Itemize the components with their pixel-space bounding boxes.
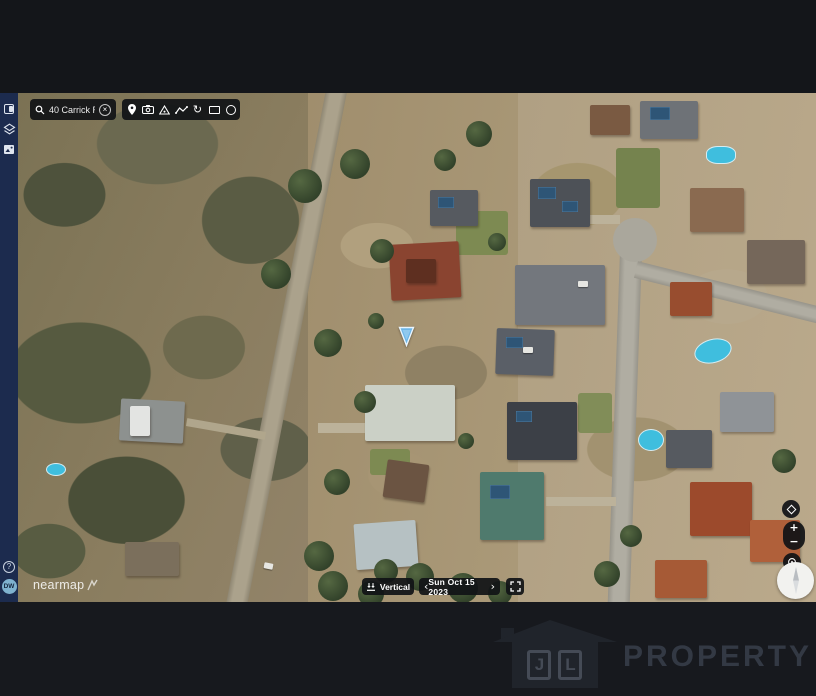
imagery-feature: [130, 406, 150, 436]
imagery-feature: [655, 560, 707, 598]
map-toolbar: ↻: [122, 99, 240, 120]
imagery-feature: [747, 240, 805, 284]
imagery-feature: [365, 385, 455, 441]
imagery-feature: [370, 239, 394, 263]
bottom-letterbox-bar: J L PROPERTY: [0, 602, 816, 696]
vertical-view-icon: [366, 582, 376, 592]
circle-measure-tool[interactable]: [224, 102, 238, 118]
imagery-feature: [666, 430, 712, 468]
nearmap-wordmark: nearmap: [33, 578, 84, 592]
imagery-feature: [690, 482, 752, 536]
rectangle-icon: [209, 106, 220, 114]
imagery-feature: [490, 485, 510, 499]
imagery-feature: [406, 259, 436, 283]
imagery-feature: [438, 197, 454, 208]
orbit-icon: [786, 504, 796, 514]
imagery-feature: [125, 542, 179, 576]
imagery-feature: [616, 148, 660, 208]
imagery-feature: [46, 463, 66, 476]
layers-icon: [3, 123, 16, 136]
line-measure-tool[interactable]: [174, 102, 188, 118]
compass-needle-icon: [791, 567, 801, 594]
survey-point-tool[interactable]: [158, 102, 172, 118]
nearmap-viewer-window: ? DW: [0, 0, 816, 696]
search-icon: [35, 105, 45, 115]
clear-search-button[interactable]: ×: [99, 104, 111, 116]
camera-icon: [142, 105, 154, 114]
help-glyph: ?: [7, 562, 11, 571]
imagery-feature: [458, 433, 474, 449]
imagery-feature: [720, 392, 774, 432]
rectangle-measure-tool[interactable]: [207, 102, 221, 118]
avatar-initials: DW: [4, 583, 15, 590]
sidebar-item-layers[interactable]: [0, 119, 18, 139]
fullscreen-icon: [510, 581, 521, 592]
orbit-control-button[interactable]: [782, 500, 800, 518]
imagery-feature: [261, 259, 291, 289]
imagery-feature: [613, 218, 657, 262]
pin-icon: [128, 104, 136, 115]
search-input[interactable]: 40 Carrick Rd, ...: [49, 105, 95, 115]
imagery-feature: [515, 265, 605, 325]
imagery-feature: [304, 541, 334, 571]
next-date-button[interactable]: ›: [491, 581, 495, 592]
survey-triangle-icon: [159, 105, 170, 115]
property-marker[interactable]: [398, 326, 415, 347]
imagery-feature: [772, 449, 796, 473]
imagery-feature: [620, 525, 642, 547]
user-avatar[interactable]: DW: [2, 579, 17, 594]
imagery-feature: [288, 169, 322, 203]
view-mode-label: Vertical: [380, 582, 410, 592]
imagery-feature: [383, 459, 430, 502]
jl-property-logo: J L PROPERTY: [493, 620, 812, 688]
survey-date-label: Sun Oct 15 2023: [428, 577, 490, 597]
aerial-imagery-canvas[interactable]: 40 Carrick Rd, ... ×: [18, 93, 816, 602]
imagery-feature: [578, 393, 612, 433]
imagery-feature: [119, 398, 185, 443]
logo-wordmark: PROPERTY: [623, 640, 812, 674]
polyline-icon: [175, 106, 188, 114]
image-icon: [3, 144, 15, 155]
fullscreen-button[interactable]: [506, 578, 524, 595]
imagery-feature: [488, 233, 506, 251]
imagery-feature: [466, 121, 492, 147]
imagery-feature: [318, 423, 366, 433]
imagery-feature: [546, 497, 616, 506]
panel-icon: [4, 104, 14, 114]
imagery-feature: [516, 411, 532, 422]
imagery-feature: [590, 105, 630, 135]
sidebar-item-exports[interactable]: [0, 139, 18, 159]
camera-tool[interactable]: [141, 102, 155, 118]
nearmap-logo: nearmap: [33, 578, 98, 592]
imagery-feature: [430, 190, 478, 226]
imagery-feature: [578, 281, 588, 287]
logo-letter-j: J: [527, 650, 551, 680]
imagery-feature: [340, 149, 370, 179]
imagery-feature: [538, 187, 556, 199]
imagery-feature: [434, 149, 456, 171]
search-box[interactable]: 40 Carrick Rd, ... ×: [30, 99, 116, 120]
imagery-feature: [506, 337, 523, 348]
logo-house-icon: J L: [493, 620, 617, 688]
imagery-feature: [480, 472, 544, 540]
imagery-feature: [638, 429, 664, 451]
view-mode-button[interactable]: Vertical: [362, 578, 414, 595]
imagery-feature: [324, 469, 350, 495]
rotate-view-tool[interactable]: ↻: [191, 102, 205, 118]
clear-glyph: ×: [103, 105, 108, 114]
imagery-feature: [706, 146, 736, 164]
top-letterbox-bar: [0, 0, 816, 93]
imagery-feature: [690, 188, 744, 232]
survey-date-picker[interactable]: ‹ Sun Oct 15 2023 ›: [419, 578, 500, 595]
sidebar: ? DW: [0, 93, 18, 602]
imagery-feature: [562, 201, 578, 212]
help-button[interactable]: ?: [3, 561, 15, 573]
compass-button[interactable]: [777, 562, 814, 599]
imagery-feature: [314, 329, 342, 357]
imagery-feature: [318, 571, 348, 601]
nearmap-logomark-icon: [87, 579, 98, 591]
imagery-feature: [354, 391, 376, 413]
location-marker-tool[interactable]: [125, 102, 139, 118]
imagery-feature: [368, 313, 384, 329]
zoom-control: + −: [783, 521, 805, 550]
rotate-icon: ↻: [193, 104, 202, 115]
circle-icon: [226, 105, 236, 115]
zoom-out-button[interactable]: −: [789, 536, 798, 547]
imagery-feature: [594, 561, 620, 587]
zoom-in-button[interactable]: +: [789, 522, 798, 533]
imagery-feature: [670, 282, 712, 316]
sidebar-item-imagery[interactable]: [0, 99, 18, 119]
imagery-feature: [523, 347, 533, 353]
logo-letter-l: L: [558, 650, 582, 680]
imagery-feature: [650, 107, 670, 120]
